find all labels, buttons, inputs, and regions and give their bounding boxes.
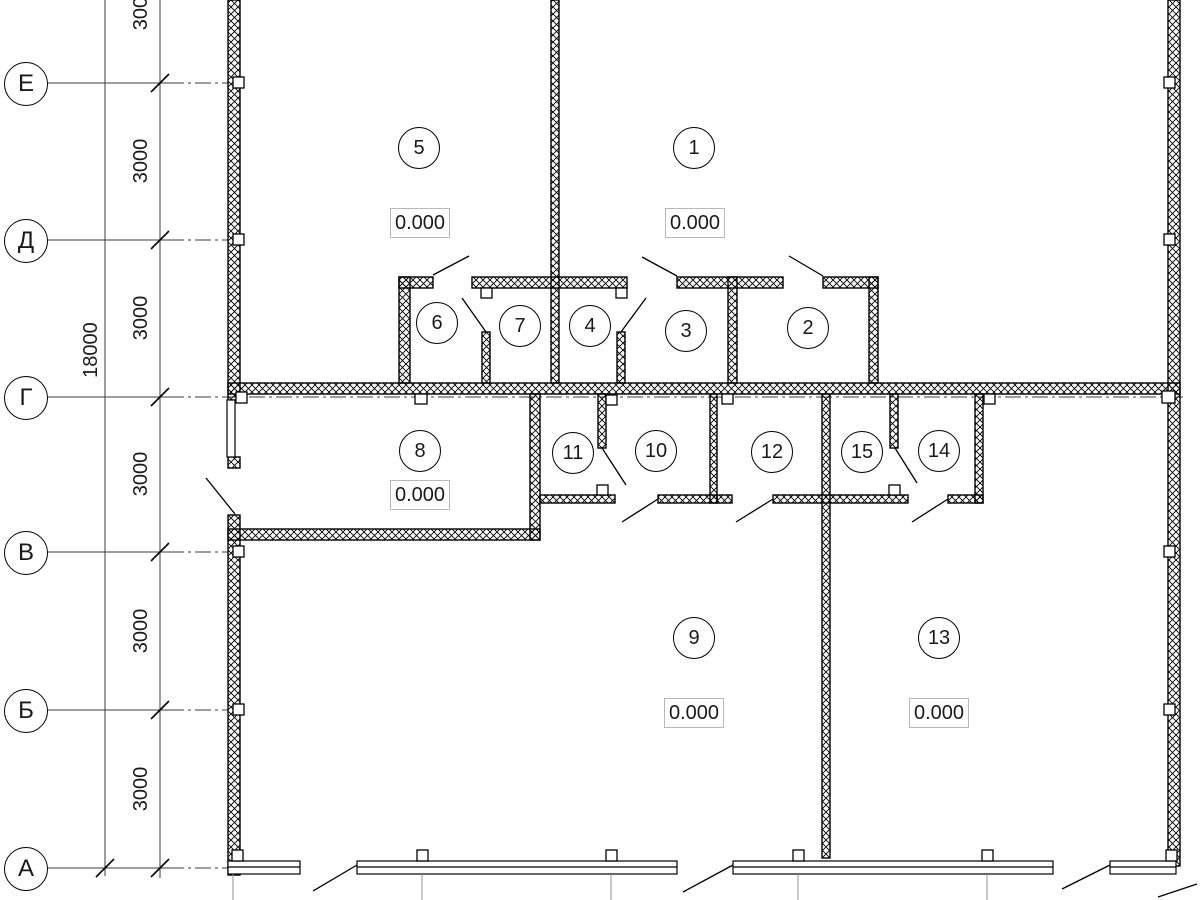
elevation-mark-room13: 0.000 [909, 698, 969, 728]
extension-lines [233, 874, 987, 900]
room-tag-14: 14 [918, 430, 960, 472]
room-number: 2 [802, 318, 813, 338]
axis-letter: Б [18, 699, 34, 723]
plan-linework [0, 0, 1200, 900]
axis-letter: Д [18, 229, 34, 253]
room-number: 10 [645, 441, 667, 461]
room-number: 12 [761, 442, 783, 462]
room-number: 15 [851, 442, 873, 462]
axis-bubble-d: Д [4, 219, 48, 263]
elevation-value: 0.000 [395, 213, 445, 233]
dimension-label-3000: 3000 [130, 596, 152, 666]
grid-axis-lines [47, 83, 1186, 868]
room-tag-2: 2 [787, 307, 829, 349]
room-tag-3: 3 [665, 310, 707, 352]
room-number: 8 [414, 441, 425, 461]
elevation-value: 0.000 [669, 703, 719, 723]
dimension-label-3000: 3000 [130, 439, 152, 509]
elevation-mark-room8: 0.000 [390, 480, 450, 510]
dimension-label-3000: 3000 [130, 126, 152, 196]
room-number: 1 [688, 138, 699, 158]
axis-bubble-v: В [4, 531, 48, 575]
elevation-value: 0.000 [670, 213, 720, 233]
room-number: 7 [514, 316, 525, 336]
axis-bubble-a: А [4, 847, 48, 891]
axis-letter: Г [20, 386, 33, 410]
axis-bubble-g: Г [4, 376, 48, 420]
door-leaf-lines [206, 256, 1197, 897]
room-tag-11: 11 [552, 432, 594, 474]
room-tag-9: 9 [673, 617, 715, 659]
dimension-label-3000: 3000 [130, 754, 152, 824]
room-tag-10: 10 [635, 430, 677, 472]
room-tag-12: 12 [751, 431, 793, 473]
elevation-value: 0.000 [914, 703, 964, 723]
room-tag-4: 4 [569, 305, 611, 347]
room-tag-8: 8 [399, 430, 441, 472]
room-number: 6 [431, 313, 442, 333]
axis-letter: В [18, 541, 34, 565]
elevation-mark-room5: 0.000 [390, 208, 450, 238]
dimension-label-3000-clipped: 3000 [130, 0, 152, 43]
room-tag-1: 1 [673, 127, 715, 169]
elevation-mark-room1: 0.000 [665, 208, 725, 238]
room-tag-6: 6 [416, 302, 458, 344]
room-number: 3 [680, 321, 691, 341]
axis-letter: Е [18, 72, 34, 96]
dimension-label-18000: 18000 [80, 300, 102, 400]
floor-plan-page: { "drawing_type": "architectural floor p… [0, 0, 1200, 900]
room-number: 5 [413, 138, 424, 158]
elevation-mark-room9: 0.000 [664, 698, 724, 728]
room-tag-15: 15 [841, 431, 883, 473]
room-number: 9 [688, 628, 699, 648]
axis-bubble-b: Б [4, 689, 48, 733]
dimension-label-3000: 3000 [130, 283, 152, 353]
axis-letter: А [18, 857, 34, 881]
room-tag-7: 7 [499, 305, 541, 347]
axis-bubble-e: Е [4, 62, 48, 106]
room-number: 11 [563, 443, 584, 463]
room-tag-5: 5 [398, 127, 440, 169]
room-number: 13 [928, 628, 950, 648]
elevation-value: 0.000 [395, 485, 445, 505]
room-tag-13: 13 [918, 617, 960, 659]
room-number: 4 [584, 316, 595, 336]
room-number: 14 [928, 441, 950, 461]
column-markers [232, 77, 1177, 861]
